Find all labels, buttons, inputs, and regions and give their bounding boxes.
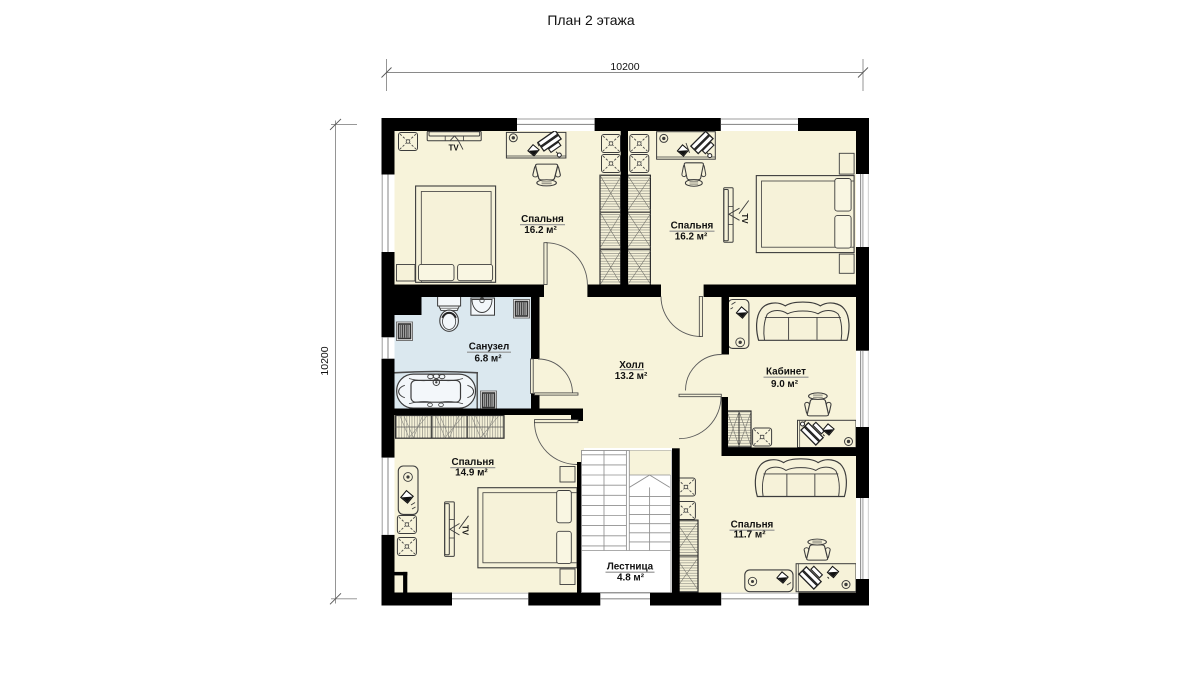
svg-text:10200: 10200 (319, 346, 331, 375)
svg-text:TV: TV (460, 525, 469, 536)
svg-text:TV: TV (448, 144, 459, 153)
svg-text:16.2 м²: 16.2 м² (675, 232, 708, 243)
svg-text:11.7 м²: 11.7 м² (733, 530, 766, 541)
svg-text:9.0 м²: 9.0 м² (771, 379, 799, 390)
svg-text:TV: TV (740, 213, 749, 224)
svg-text:16.2 м²: 16.2 м² (524, 225, 557, 236)
svg-text:Спальня: Спальня (521, 214, 564, 225)
svg-text:4.8 м²: 4.8 м² (617, 573, 645, 584)
svg-text:План 2 этажа: План 2 этажа (547, 12, 635, 28)
svg-text:Санузел: Санузел (469, 342, 510, 353)
svg-text:13.2 м²: 13.2 м² (615, 371, 648, 382)
svg-text:6.8 м²: 6.8 м² (474, 354, 502, 365)
svg-text:Кабинет: Кабинет (766, 367, 806, 378)
svg-text:14.9 м²: 14.9 м² (455, 468, 488, 479)
svg-text:10200: 10200 (610, 61, 639, 73)
svg-text:Лестница: Лестница (607, 562, 654, 573)
svg-text:Спальня: Спальня (451, 457, 494, 468)
svg-text:Спальня: Спальня (671, 221, 714, 232)
